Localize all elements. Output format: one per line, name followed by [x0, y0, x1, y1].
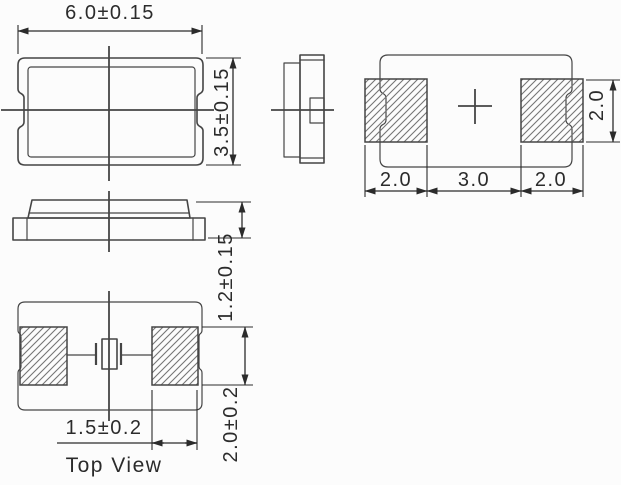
top-electrode-right: [152, 327, 198, 385]
dim-label-pad-gap: 3.0: [444, 169, 504, 191]
front-outline: [18, 58, 203, 165]
side-terminal-lines: [27, 218, 193, 240]
dim-label-body-height: 3.5±0.15: [211, 42, 233, 182]
dim-label-electrode-height: 2.0±0.2: [220, 364, 242, 484]
technical-drawing: 6.0±0.15 3.5±0.15 1.2±0.15 2.0 3.0 2.0 2…: [0, 0, 621, 485]
view-title: Top View: [34, 455, 194, 477]
end-base: [300, 55, 324, 163]
front-dimensions: [18, 25, 241, 165]
front-view: [1, 25, 241, 181]
extension-line: [18, 25, 202, 54]
end-view: [271, 55, 334, 163]
land-pad-left: [365, 79, 427, 142]
front-lid-outline: [28, 67, 195, 157]
dim-label-pad-height: 2.0: [586, 75, 608, 135]
dim-label-pad-left-width: 2.0: [366, 169, 426, 191]
land-pad-right: [521, 79, 583, 142]
dim-label-body-width: 6.0±0.15: [40, 2, 180, 24]
dim-label-body-thickness: 1.2±0.15: [215, 207, 237, 347]
center-cross: [458, 89, 492, 124]
end-base-bands: [300, 60, 324, 158]
dim-label-pad-right-width: 2.0: [521, 169, 581, 191]
top-electrode-left: [20, 327, 67, 385]
drawing-linework: [0, 0, 621, 485]
dim-label-electrode-width: 1.5±0.2: [44, 417, 164, 439]
